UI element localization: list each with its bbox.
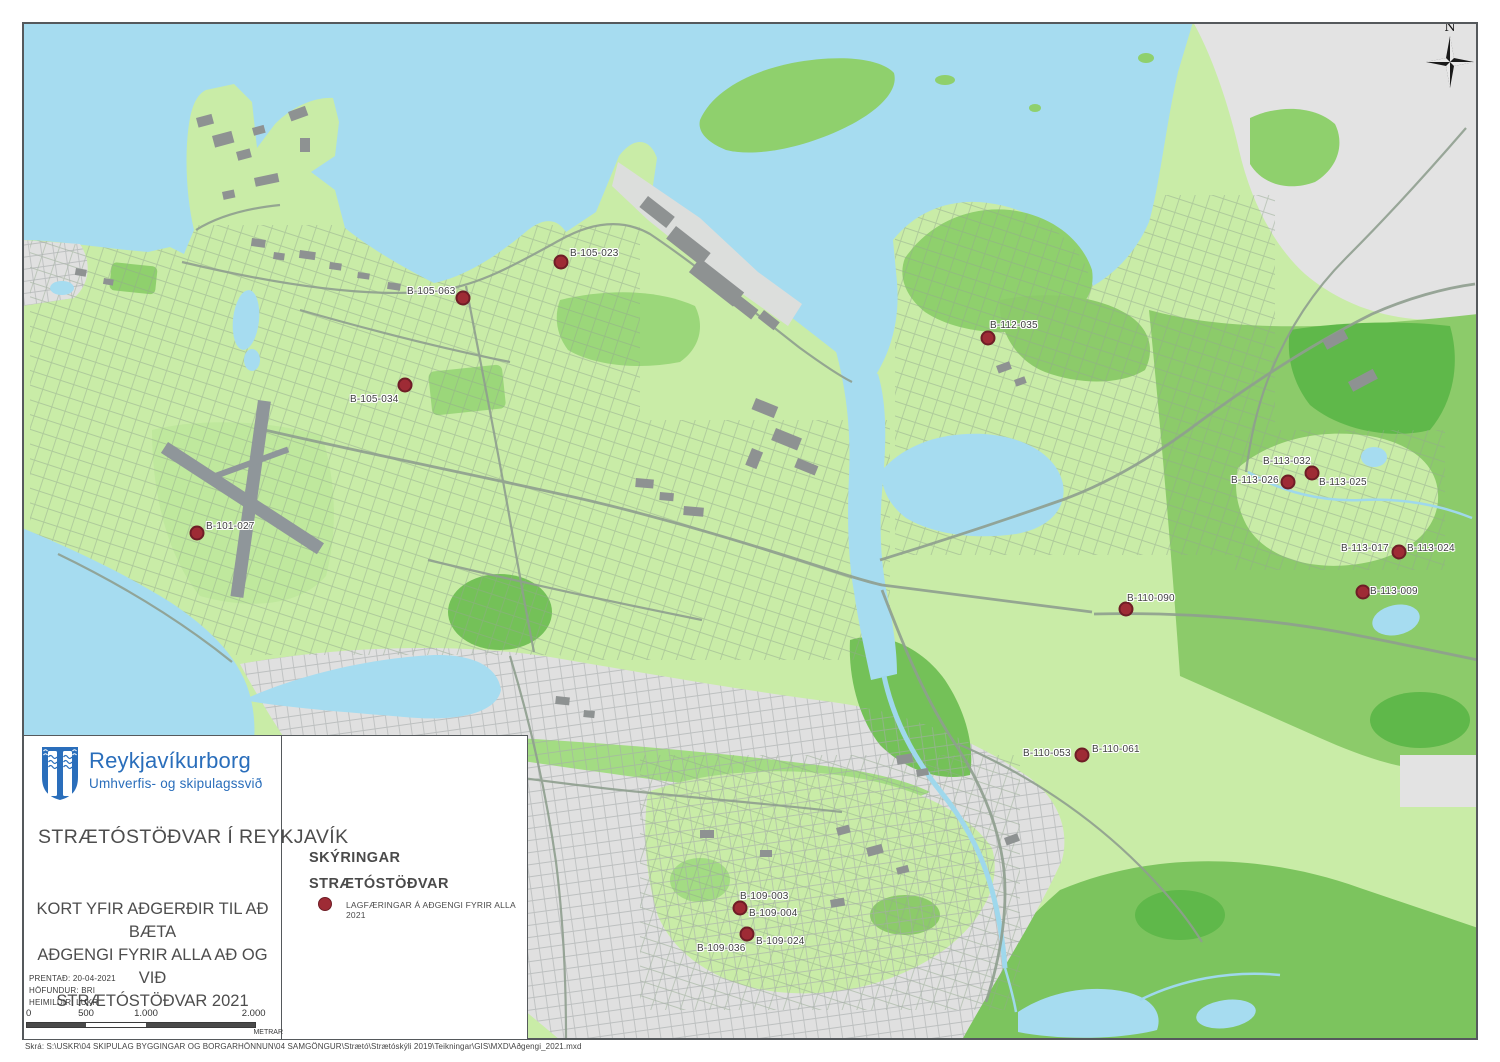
scale-tick: 0: [26, 1008, 31, 1019]
title-block: Reykjavíkurborg Umhverfis- og skipulagss…: [24, 736, 282, 1039]
bus-stop-marker[interactable]: [190, 526, 205, 541]
author-line: HÖFUNDUR: BRI: [29, 985, 116, 997]
reykjavik-coat-of-arms-icon: [40, 745, 80, 801]
org-department: Umhverfis- og skipulagssvið: [89, 776, 262, 791]
print-info: PRENTAÐ: 20-04-2021 HÖFUNDUR: BRI HEIMIL…: [29, 973, 116, 1009]
bus-stop-marker[interactable]: [740, 927, 755, 942]
printed-line: PRENTAÐ: 20-04-2021: [29, 973, 116, 985]
bus-stop-marker[interactable]: [1075, 748, 1090, 763]
bus-stop-marker[interactable]: [398, 378, 413, 393]
scale-unit: METRAR: [199, 1029, 283, 1036]
reykjavik-logo: Reykjavíkurborg Umhverfis- og skipulagss…: [40, 745, 262, 801]
file-path: Skrá: S:\USKR\04 SKIPULAG BYGGINGAR OG B…: [25, 1042, 582, 1051]
scale-bar: 0 500 1.000 2.000 METRAR: [26, 1008, 278, 1038]
bus-stop-marker[interactable]: [554, 255, 569, 270]
bus-stop-marker[interactable]: [1392, 545, 1407, 560]
legend-item-label: LAGFÆRINGAR Á AÐGENGI FYRIR ALLA 2021: [346, 900, 527, 920]
org-name: Reykjavíkurborg: [89, 748, 262, 774]
bus-stop-marker[interactable]: [1305, 466, 1320, 481]
scale-tick: 2.000: [242, 1008, 266, 1019]
bus-stop-marker[interactable]: [456, 291, 471, 306]
scale-tick: 500: [78, 1008, 94, 1019]
bus-stop-marker[interactable]: [1356, 585, 1371, 600]
legend-subheading: STRÆTÓSTÖÐVAR: [309, 876, 449, 892]
legend-dot-symbol: [318, 897, 332, 911]
legend-heading: SKÝRINGAR: [309, 850, 401, 866]
bus-stop-marker[interactable]: [1119, 602, 1134, 617]
bus-stop-marker[interactable]: [1281, 475, 1296, 490]
bus-stop-marker[interactable]: [733, 901, 748, 916]
info-panel: Reykjavíkurborg Umhverfis- og skipulagss…: [23, 735, 528, 1040]
bus-stop-marker[interactable]: [981, 331, 996, 346]
legend-block: SKÝRINGAR STRÆTÓSTÖÐVAR LAGFÆRINGAR Á AÐ…: [282, 736, 527, 1039]
scale-tick: 1.000: [134, 1008, 158, 1019]
